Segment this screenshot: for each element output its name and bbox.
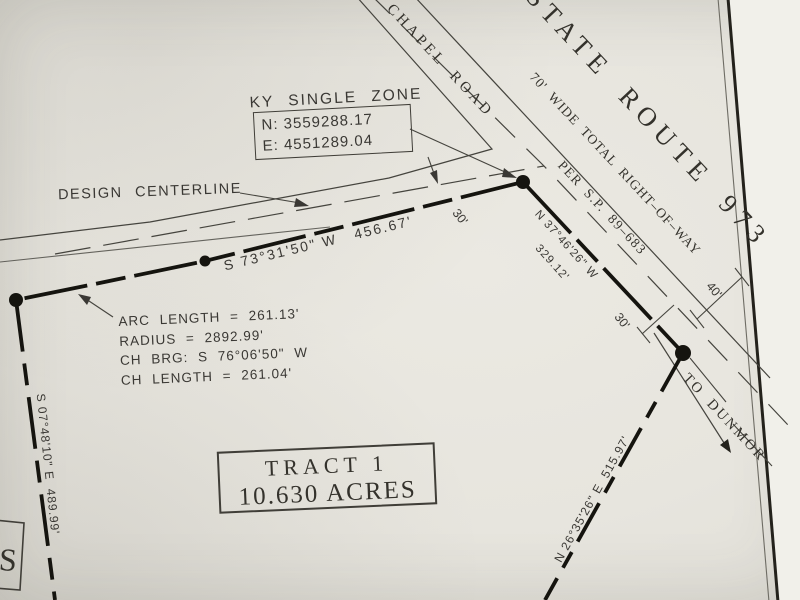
coordinate-box: N: 3559288.17 E: 4551289.04 (253, 104, 413, 160)
dim-tick-30a-arrow (430, 170, 438, 184)
curve-data-leader (86, 299, 113, 317)
design-centerline-leader (240, 193, 300, 203)
to-dunmor-arrowhead (720, 439, 731, 453)
curve-data-block: ARC LENGTH = 261.13' RADIUS = 2892.99' C… (118, 304, 309, 390)
survey-point-tangent (200, 256, 211, 267)
survey-point-west (9, 293, 23, 307)
curve-data-leader-arrow (78, 294, 91, 305)
corner-box-letter: S (0, 541, 18, 579)
design-centerline-leader-arrow (294, 198, 309, 207)
dim-tick-40a (690, 310, 704, 328)
survey-plat-sheet: KY SINGLE ZONE N: 3559288.17 E: 4551289.… (0, 0, 800, 600)
survey-point-east (675, 345, 691, 361)
dim-tick-30b (637, 327, 650, 343)
boundary-southeast-line (545, 353, 683, 600)
sheet-margin (727, 0, 800, 600)
dim-line-40 (697, 277, 742, 319)
coordinate-box-leader-arrow (502, 168, 517, 178)
coordinate-box-leader (410, 129, 505, 172)
tract-box: TRACT 1 10.630 ACRES (217, 442, 437, 513)
survey-point-north (516, 175, 530, 189)
dim-line-30b (642, 305, 674, 334)
